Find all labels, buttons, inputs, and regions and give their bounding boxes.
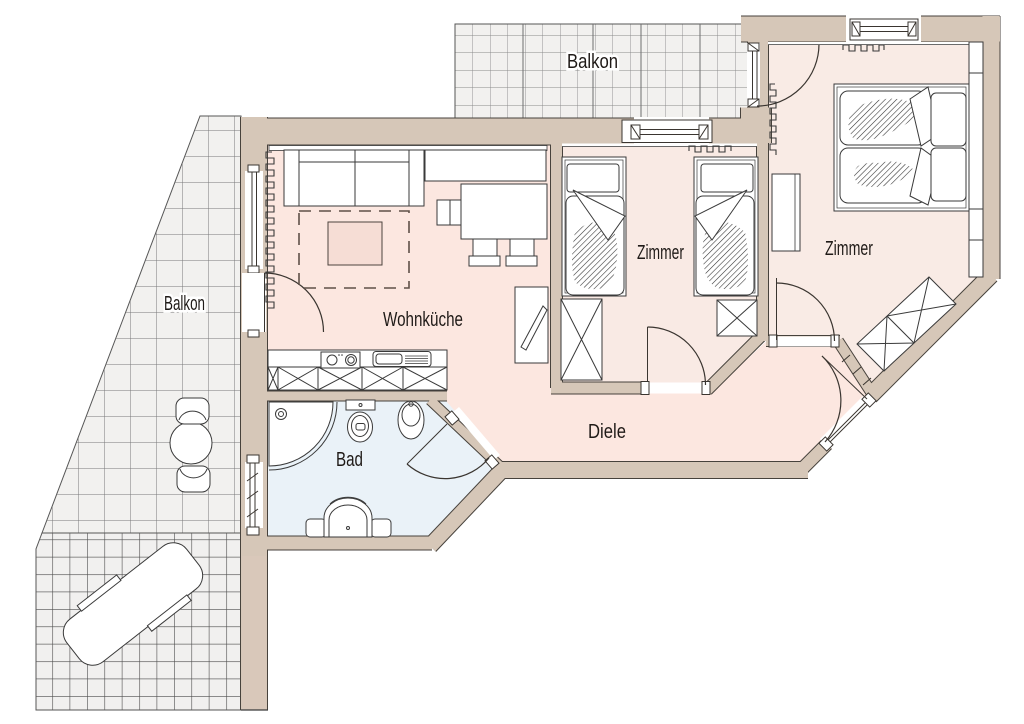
svg-text:Balkon: Balkon [164,293,205,315]
svg-text:Bad: Bad [336,449,363,471]
svg-text:Zimmer: Zimmer [825,238,873,260]
svg-text:Balkon: Balkon [567,51,618,73]
svg-text:Wohnküche: Wohnküche [383,309,463,331]
svg-text:Zimmer: Zimmer [637,242,684,264]
svg-text:Diele: Diele [588,421,626,443]
